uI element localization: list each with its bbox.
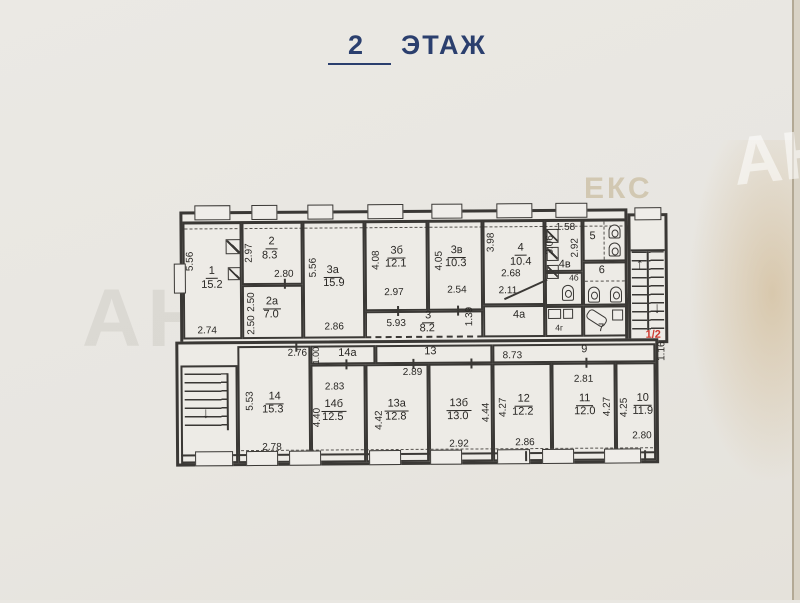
dim-tick: [585, 358, 587, 368]
room-number: 9: [581, 344, 587, 355]
window: [246, 451, 278, 466]
dimension: 4.44: [482, 403, 492, 423]
dim-tick: [397, 306, 399, 316]
toilet-icon: [610, 286, 622, 302]
dimension: 2.92: [449, 440, 469, 450]
room-area: 12.0: [574, 406, 595, 417]
dimension: 3.06: [546, 235, 556, 255]
room-number: 5: [589, 231, 595, 242]
window: [251, 205, 277, 220]
dimension: 5.56: [186, 252, 196, 272]
sink-icon: [548, 309, 561, 319]
window: [430, 450, 462, 465]
room-area: 15.3: [262, 404, 283, 415]
room-area: 15.2: [201, 280, 222, 291]
room-area: 10.3: [445, 258, 466, 269]
dim-tick: [457, 306, 459, 316]
room-area: 12.2: [512, 407, 533, 418]
room-area: 12.8: [385, 411, 406, 422]
room-number: 14а: [338, 348, 356, 359]
dimension: 2.81: [574, 375, 594, 385]
window: [496, 203, 532, 218]
dimension: 2.89: [403, 368, 423, 378]
dimension: 2.92: [571, 238, 581, 258]
dimension: 2.11: [499, 286, 518, 296]
window: [542, 449, 574, 464]
dim-tick: [644, 450, 646, 460]
room-number: 7: [598, 323, 604, 334]
dimension: 2.97: [245, 243, 255, 263]
dimension: 4.08: [372, 250, 382, 270]
dimension: 2.50: [247, 315, 257, 335]
room-area: 13.0: [447, 411, 468, 422]
room-area: 12.1: [385, 258, 406, 269]
room-area: 8.2: [420, 323, 435, 334]
dimension: 5.53: [246, 391, 256, 411]
sink-icon: [563, 309, 573, 319]
room-number: 4г: [555, 324, 563, 333]
down-arrow-icon: ↓: [202, 405, 210, 422]
window: [555, 203, 587, 218]
toilet-icon: [562, 285, 574, 301]
dimension: 4.25: [620, 398, 630, 418]
dimension: 4.27: [603, 397, 613, 417]
dimension: 2.80: [632, 431, 652, 441]
dimension: 1.39: [465, 307, 475, 327]
room-number: 4в: [559, 259, 571, 270]
dimension: 4.05: [435, 251, 445, 271]
dimension: 5.56: [309, 258, 319, 278]
window: [431, 204, 462, 219]
room-area: 7.0: [263, 309, 278, 320]
dimension: 2.86: [324, 322, 344, 332]
room-area: 11.9: [632, 406, 653, 417]
vent-shaft-icon: [226, 239, 241, 254]
dimension: 2.78: [262, 443, 282, 453]
toilet-icon: [609, 242, 621, 256]
room-number: 4а: [513, 310, 525, 321]
dimension: 2.74: [197, 326, 217, 336]
stair-right-flight-down: [649, 251, 665, 330]
dimension: 4.27: [499, 398, 509, 418]
window: [604, 448, 641, 463]
dimension: 2.97: [384, 288, 404, 298]
dimension: 2.68: [501, 269, 521, 279]
window: [194, 205, 230, 220]
room-number: 1: [206, 266, 218, 279]
dimension: 1.00: [312, 347, 321, 365]
dimension: 2.54: [447, 286, 467, 296]
floor-plan-drawing: ↑ ↓ 1/2 1 15.2 5.56 2.: [0, 0, 800, 603]
vent-shaft-icon: [228, 267, 241, 280]
toilet-icon: [588, 287, 600, 303]
sink-icon: [612, 309, 623, 320]
dimension: 3.98: [487, 233, 497, 253]
up-arrow-icon: ↑: [636, 256, 644, 273]
dimension: 2.50: [247, 292, 257, 312]
room-number: 2: [265, 236, 277, 249]
room-number: 4б: [569, 274, 579, 283]
window: [289, 451, 321, 466]
dimension: 5.93: [386, 319, 406, 329]
dim-tick: [525, 451, 527, 461]
room-number: 13: [424, 346, 436, 357]
window: [307, 204, 333, 219]
vent-shaft-icon: [547, 265, 559, 279]
window: [195, 451, 233, 466]
down-arrow-icon: ↓: [653, 300, 661, 317]
room-area: 12.5: [322, 412, 343, 423]
dim-tick: [470, 358, 472, 368]
toilet-icon: [608, 224, 620, 238]
dim-tick: [284, 279, 286, 289]
stair-left-flight: [185, 373, 228, 430]
room-area: 15.9: [323, 278, 344, 289]
dimension: 4.42: [375, 410, 385, 430]
dimension: 1.16: [657, 341, 667, 361]
room-area: 8.3: [262, 250, 277, 261]
window: [634, 207, 661, 220]
stair-left-edge-wall: [227, 373, 229, 430]
dim-tick: [345, 359, 347, 369]
dimension: 2.86: [515, 438, 535, 448]
dimension: 8.73: [503, 351, 523, 361]
room-area: 10.4: [510, 257, 531, 268]
dimension: 4.40: [313, 408, 323, 428]
dimension: 2.83: [325, 382, 345, 392]
dimension: 2.76: [288, 349, 308, 359]
window: [369, 450, 401, 465]
room-number: 4: [515, 243, 527, 256]
scanned-floor-plan-page: АН АН ЕКС ость 2 ЭТАЖ ↑ ↓: [0, 0, 800, 600]
room-number: 6: [599, 265, 605, 276]
dimension: 1.58: [556, 223, 576, 233]
window: [367, 204, 403, 219]
